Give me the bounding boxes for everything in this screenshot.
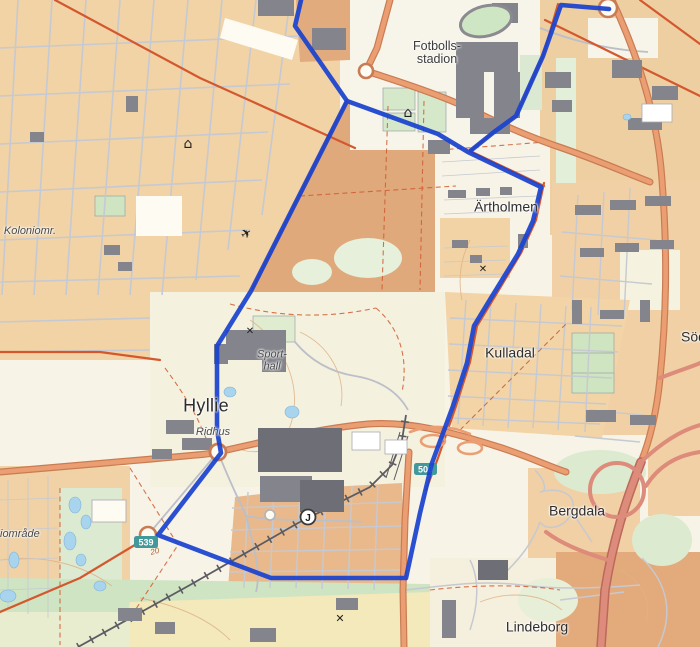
windmill-icon: ✕ bbox=[335, 612, 344, 625]
svg-text:J: J bbox=[305, 513, 311, 524]
house-icon: ⌂ bbox=[404, 105, 413, 121]
map-viewport[interactable]: 500 539 J ✈ ⌂ ⌂ ✕ ✕ ✕ Fotbolls- stadion … bbox=[0, 0, 700, 647]
railway-station-icon: J bbox=[301, 510, 316, 525]
road-badge-539: 539 bbox=[134, 536, 158, 548]
svg-text:539: 539 bbox=[138, 538, 153, 548]
windmill-icon: ✕ bbox=[479, 264, 487, 275]
windmill-icon: ✕ bbox=[246, 326, 254, 337]
house-icon: ⌂ bbox=[184, 136, 193, 152]
map-base: 500 539 J ✈ ⌂ ⌂ ✕ ✕ ✕ bbox=[0, 0, 700, 647]
